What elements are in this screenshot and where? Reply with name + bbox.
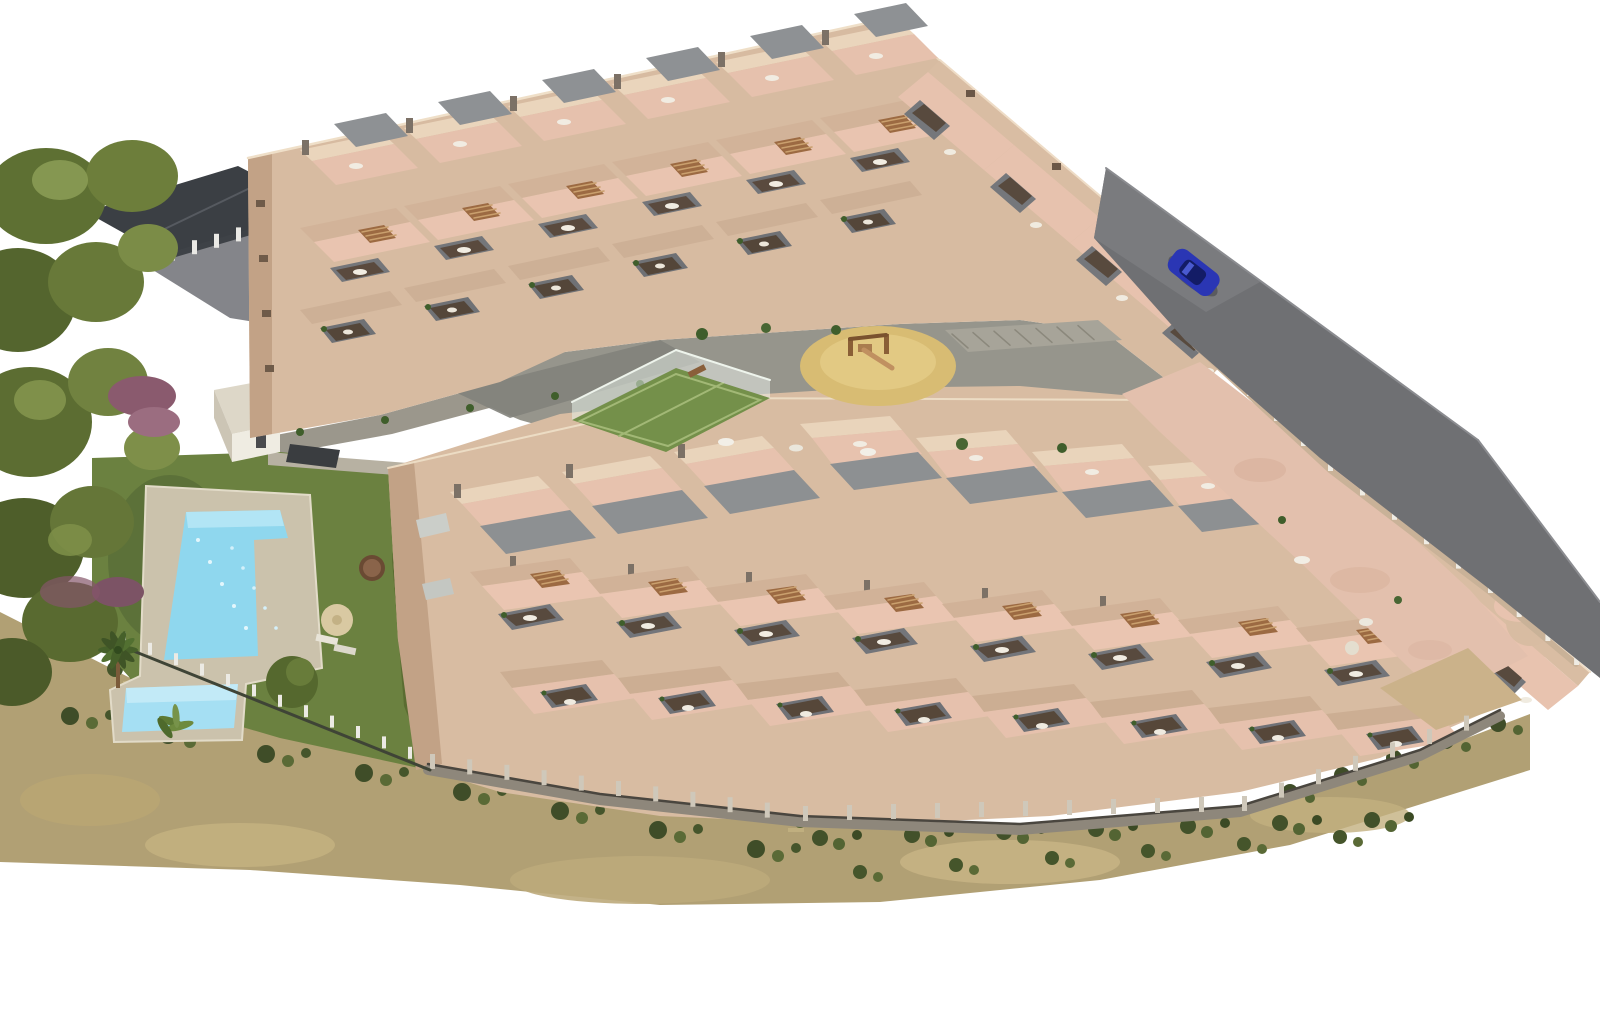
perimeter-wall-posts-6 (1023, 801, 1028, 816)
balcony-plant (529, 282, 535, 288)
plaza-bench-seat (860, 448, 876, 456)
perimeter-wall-posts-10 (1199, 797, 1204, 812)
wall-post (1279, 783, 1284, 798)
chimney (678, 444, 685, 458)
pool-sparkle-row-3 (252, 586, 256, 590)
perimeter-wall-posts-4 (935, 803, 940, 818)
bush (1404, 812, 1414, 822)
wall-post (579, 776, 584, 791)
north-walkway-planters-4 (551, 392, 559, 400)
perimeter-wall-posts-7 (1464, 716, 1469, 731)
terrace-sofa (1085, 469, 1099, 475)
wall-post (690, 792, 695, 807)
bush (576, 812, 588, 824)
sparkle (274, 626, 278, 630)
pool-sparkle-row-1 (196, 538, 200, 542)
parasol-top (332, 615, 342, 625)
purple-shrub (128, 407, 180, 437)
plaza-bench-seat (718, 438, 734, 446)
tree-highlight (14, 380, 66, 420)
bush (674, 831, 686, 843)
balcony-plant (321, 326, 327, 332)
boundary-fence-posts-4 (214, 234, 219, 248)
perimeter-wall-posts-7 (653, 786, 658, 801)
patio-lounger (1154, 729, 1166, 735)
balcony-chair (551, 286, 561, 291)
patio-sofa (1294, 556, 1310, 564)
balcony-plant (973, 644, 979, 650)
bush (1201, 826, 1213, 838)
balcony-plant (1209, 660, 1215, 666)
sparkle (220, 582, 224, 586)
patio-plant (778, 703, 783, 708)
sparkle (196, 538, 200, 542)
perimeter-wall-posts-3 (1316, 769, 1321, 784)
perimeter-wall-posts-4 (1353, 756, 1358, 771)
dry-tuft (788, 828, 804, 832)
planter (381, 416, 389, 424)
fence-post (214, 234, 219, 248)
bush (1161, 851, 1171, 861)
north-facade-windows-4 (265, 365, 274, 372)
patio-plant (896, 709, 901, 714)
perimeter-wall-posts-5 (979, 802, 984, 817)
wall-post (728, 797, 733, 812)
dry-grass-patch (145, 823, 335, 867)
patio-lounger (918, 717, 930, 723)
balcony-plant (841, 216, 847, 222)
balcony-chair (447, 308, 457, 313)
bush (355, 764, 373, 782)
balcony-sofa (873, 159, 887, 165)
bush (86, 717, 98, 729)
chimney (302, 140, 309, 155)
wall-post (430, 754, 435, 769)
terrace-sofa (661, 97, 675, 103)
plaza-planter (956, 438, 968, 450)
balcony-plant (633, 260, 639, 266)
bush (453, 783, 471, 801)
perimeter-wall-posts-6 (1427, 729, 1432, 744)
garden-fence-posts-3 (148, 643, 152, 655)
wall-post (1199, 797, 1204, 812)
window (262, 310, 271, 317)
bush (772, 850, 784, 862)
perimeter-wall-posts-8 (690, 792, 695, 807)
balcony-plant (1091, 652, 1097, 658)
north-west-facade (248, 153, 272, 438)
tree-canopy (118, 224, 178, 272)
pool-sparkle-row-5 (244, 626, 248, 630)
garden-fence-posts-10 (330, 716, 334, 728)
north-facade-windows-3 (262, 310, 271, 317)
sparkle (263, 606, 267, 610)
dry-grass-patch (510, 856, 770, 904)
north-walkway-planters-1 (296, 428, 304, 436)
fence-post (408, 747, 412, 759)
bush (301, 748, 311, 758)
fence-post (382, 736, 386, 748)
perimeter-wall-posts-3 (504, 765, 509, 780)
window (265, 365, 274, 372)
north-walkway-planters-3 (466, 404, 474, 412)
plaza-planter (1057, 443, 1067, 453)
fence-post (174, 653, 178, 665)
fence-post (252, 684, 256, 696)
patio-lounger (1272, 735, 1284, 741)
patio-sofa (1359, 618, 1373, 626)
perimeter-wall-posts-3 (891, 804, 896, 819)
bush (852, 830, 862, 840)
bush (61, 707, 79, 725)
bush (747, 840, 765, 858)
perimeter-wall-posts-9 (728, 797, 733, 812)
fence-post (278, 695, 282, 707)
fence-post (192, 240, 197, 254)
window (256, 200, 265, 207)
bush (551, 802, 569, 820)
plaza-planter (761, 323, 771, 333)
terrace-sofa (853, 441, 867, 447)
wall-post (1155, 798, 1160, 813)
wall-post (1353, 756, 1358, 771)
fence-post (356, 726, 360, 738)
playground-sand-light (820, 334, 936, 390)
wall-post (1111, 799, 1116, 814)
balcony-sofa (769, 181, 783, 187)
chimney (614, 74, 621, 89)
wall-post (1242, 796, 1247, 811)
patio-plant (1250, 727, 1255, 732)
plaza-planter (696, 328, 708, 340)
wall-post (979, 802, 984, 817)
perimeter-wall-posts-6 (616, 781, 621, 796)
bush (949, 858, 963, 872)
perimeter-wall-posts-7 (1067, 800, 1072, 815)
bush (693, 824, 703, 834)
balcony-plant (619, 620, 625, 626)
tree-canopy (86, 140, 178, 212)
pool-sparkle-row-2 (241, 566, 245, 570)
bush (1333, 830, 1347, 844)
perimeter-wall-posts-1 (803, 806, 808, 821)
north-facade-windows-2 (259, 255, 268, 262)
terrace-sofa (869, 53, 883, 59)
patio-mottle (1330, 567, 1390, 593)
fence-post (226, 674, 230, 686)
wall-post (1390, 742, 1395, 757)
chimney (406, 118, 413, 133)
balcony-chair (759, 242, 769, 247)
patio-plant (1368, 733, 1373, 738)
terrace-sofa (944, 149, 956, 155)
terrace-sofa (969, 455, 983, 461)
balcony-sofa (641, 623, 655, 629)
planter (466, 404, 474, 412)
garden-fence-posts-11 (356, 726, 360, 738)
tree-highlight (32, 160, 88, 200)
plaza-planter (831, 325, 841, 335)
perimeter-wall-posts-2 (847, 805, 852, 820)
balcony-plant (737, 238, 743, 244)
window (966, 90, 975, 97)
bush (812, 830, 828, 846)
bush (791, 843, 801, 853)
palm-crown (114, 646, 122, 654)
main-pool-sheen (186, 510, 284, 528)
terrace-sofa (765, 75, 779, 81)
patio-plant (542, 691, 547, 696)
perimeter-wall-posts-2 (467, 759, 472, 774)
terrace-sofa (557, 119, 571, 125)
bush (1237, 837, 1251, 851)
bush (478, 793, 490, 805)
wall-post (1023, 801, 1028, 816)
garden-fence-posts-7 (252, 684, 256, 696)
perimeter-wall-posts-1 (430, 754, 435, 769)
bush (1353, 837, 1363, 847)
perimeter-wall-posts-9 (1155, 798, 1160, 813)
terrace-sofa (453, 141, 467, 147)
fence-post (236, 227, 241, 241)
wall-post (1427, 729, 1432, 744)
pool-sparkle-row-4 (263, 606, 267, 610)
bush (1293, 823, 1305, 835)
balcony-plant (501, 612, 507, 618)
garden-fence-posts-13 (408, 747, 412, 759)
balcony-sofa (561, 225, 575, 231)
garden-tree-highlight (286, 658, 314, 686)
terrace-sofa (1116, 295, 1128, 301)
bush (257, 745, 275, 763)
balcony-sofa (877, 639, 891, 645)
north-walkway-planters-2 (381, 416, 389, 424)
bush (1220, 818, 1230, 828)
balcony-sofa (759, 631, 773, 637)
wall-post (1464, 716, 1469, 731)
chimney (718, 52, 725, 67)
garden-fence-posts-12 (382, 736, 386, 748)
balcony-sofa (457, 247, 471, 253)
dry-grass-patch (20, 774, 160, 826)
patio-plant (1278, 516, 1286, 524)
bush (873, 872, 883, 882)
balcony-chair (863, 220, 873, 225)
balcony-sofa (1231, 663, 1245, 669)
perimeter-wall-posts-2 (1279, 783, 1284, 798)
planter (296, 428, 304, 436)
sparkle (232, 604, 236, 608)
bush (1312, 815, 1322, 825)
pool-sparkle-row-3 (220, 582, 224, 586)
bush (1385, 820, 1397, 832)
terrace-sofa (1201, 483, 1215, 489)
site-plan-rendering (0, 0, 1600, 1024)
pool-sparkle-row-5 (274, 626, 278, 630)
bush (1513, 725, 1523, 735)
patio-plant (1132, 721, 1137, 726)
perimeter-wall-posts-5 (1390, 742, 1395, 757)
balcony-chair (655, 264, 665, 269)
balcony-sofa (353, 269, 367, 275)
perimeter-wall-posts-1 (1242, 796, 1247, 811)
wall-post (1316, 769, 1321, 784)
balcony-sofa (523, 615, 537, 621)
bush (282, 755, 294, 767)
wall-post (616, 781, 621, 796)
sparkle (208, 560, 212, 564)
bush (1272, 815, 1288, 831)
bush (925, 835, 937, 847)
sparkle (252, 586, 256, 590)
bush (399, 767, 409, 777)
fence-post (148, 643, 152, 655)
balcony-sofa (995, 647, 1009, 653)
bush (1461, 742, 1471, 752)
fence-post (200, 664, 204, 676)
patio-lounger (1036, 723, 1048, 729)
bush (1257, 844, 1267, 854)
balcony-plant (1327, 668, 1333, 674)
patio-lounger (682, 705, 694, 711)
perimeter-wall-posts-10 (765, 803, 770, 818)
wall-post (653, 786, 658, 801)
wall-post (1067, 800, 1072, 815)
patio-plant (660, 697, 665, 702)
garden-fence-posts-4 (174, 653, 178, 665)
planter (551, 392, 559, 400)
bush (649, 821, 667, 839)
wall-post (935, 803, 940, 818)
sparkle (241, 566, 245, 570)
garden-fence-posts-9 (304, 705, 308, 717)
balcony-plant (855, 636, 861, 642)
garden-fence-posts-6 (226, 674, 230, 686)
patio-mottle (1408, 640, 1452, 660)
chimney (822, 30, 829, 45)
bush (380, 774, 392, 786)
tree-highlight (48, 524, 92, 556)
chimney (454, 484, 461, 498)
balcony-sofa (1349, 671, 1363, 677)
pool-sparkle-row-4 (232, 604, 236, 608)
garden-fence-posts-5 (200, 664, 204, 676)
wall-post (467, 759, 472, 774)
bush (1065, 858, 1075, 868)
round-daybed-cushion (363, 559, 381, 577)
patio-plant (1014, 715, 1019, 720)
north-facade-windows-1 (256, 200, 265, 207)
wall-post (891, 804, 896, 819)
balcony-chair (343, 330, 353, 335)
bush (1364, 812, 1380, 828)
balcony-plant (425, 304, 431, 310)
chimney (566, 464, 573, 478)
patio-daybed (1345, 641, 1359, 655)
sparkle (244, 626, 248, 630)
bush (1141, 844, 1155, 858)
bush (969, 865, 979, 875)
patio-plant (1394, 596, 1402, 604)
bush (853, 865, 867, 879)
balcony-plant (737, 628, 743, 634)
wall-post (847, 805, 852, 820)
bush (1109, 829, 1121, 841)
balcony-sofa (665, 203, 679, 209)
boundary-fence-posts-3 (192, 240, 197, 254)
plaza-bench-seat (789, 445, 803, 452)
wall-post (765, 803, 770, 818)
window (1052, 163, 1061, 170)
terrace-sofa (349, 163, 363, 169)
purple-shrub (40, 576, 100, 608)
boundary-fence-posts-5 (236, 227, 241, 241)
bush (1045, 851, 1059, 865)
wall-post (504, 765, 509, 780)
garden-fence-posts-8 (278, 695, 282, 707)
window (259, 255, 268, 262)
wall-post (542, 770, 547, 785)
patio-lounger (564, 699, 576, 705)
sparkle (230, 546, 234, 550)
pool-sparkle-row-1 (230, 546, 234, 550)
perimeter-wall-posts-8 (1111, 799, 1116, 814)
perimeter-wall-posts-5 (579, 776, 584, 791)
bush (833, 838, 845, 850)
patio-lounger (800, 711, 812, 717)
pool-sparkle-row-2 (208, 560, 212, 564)
wall-post (803, 806, 808, 821)
perimeter-wall-posts-4 (542, 770, 547, 785)
patio-mottle (1234, 458, 1286, 482)
architectural-aerial-rendering (0, 0, 1600, 1024)
chimney (510, 96, 517, 111)
fence-post (304, 705, 308, 717)
fence-post (330, 716, 334, 728)
balcony-sofa (1113, 655, 1127, 661)
terrace-sofa (1030, 222, 1042, 228)
